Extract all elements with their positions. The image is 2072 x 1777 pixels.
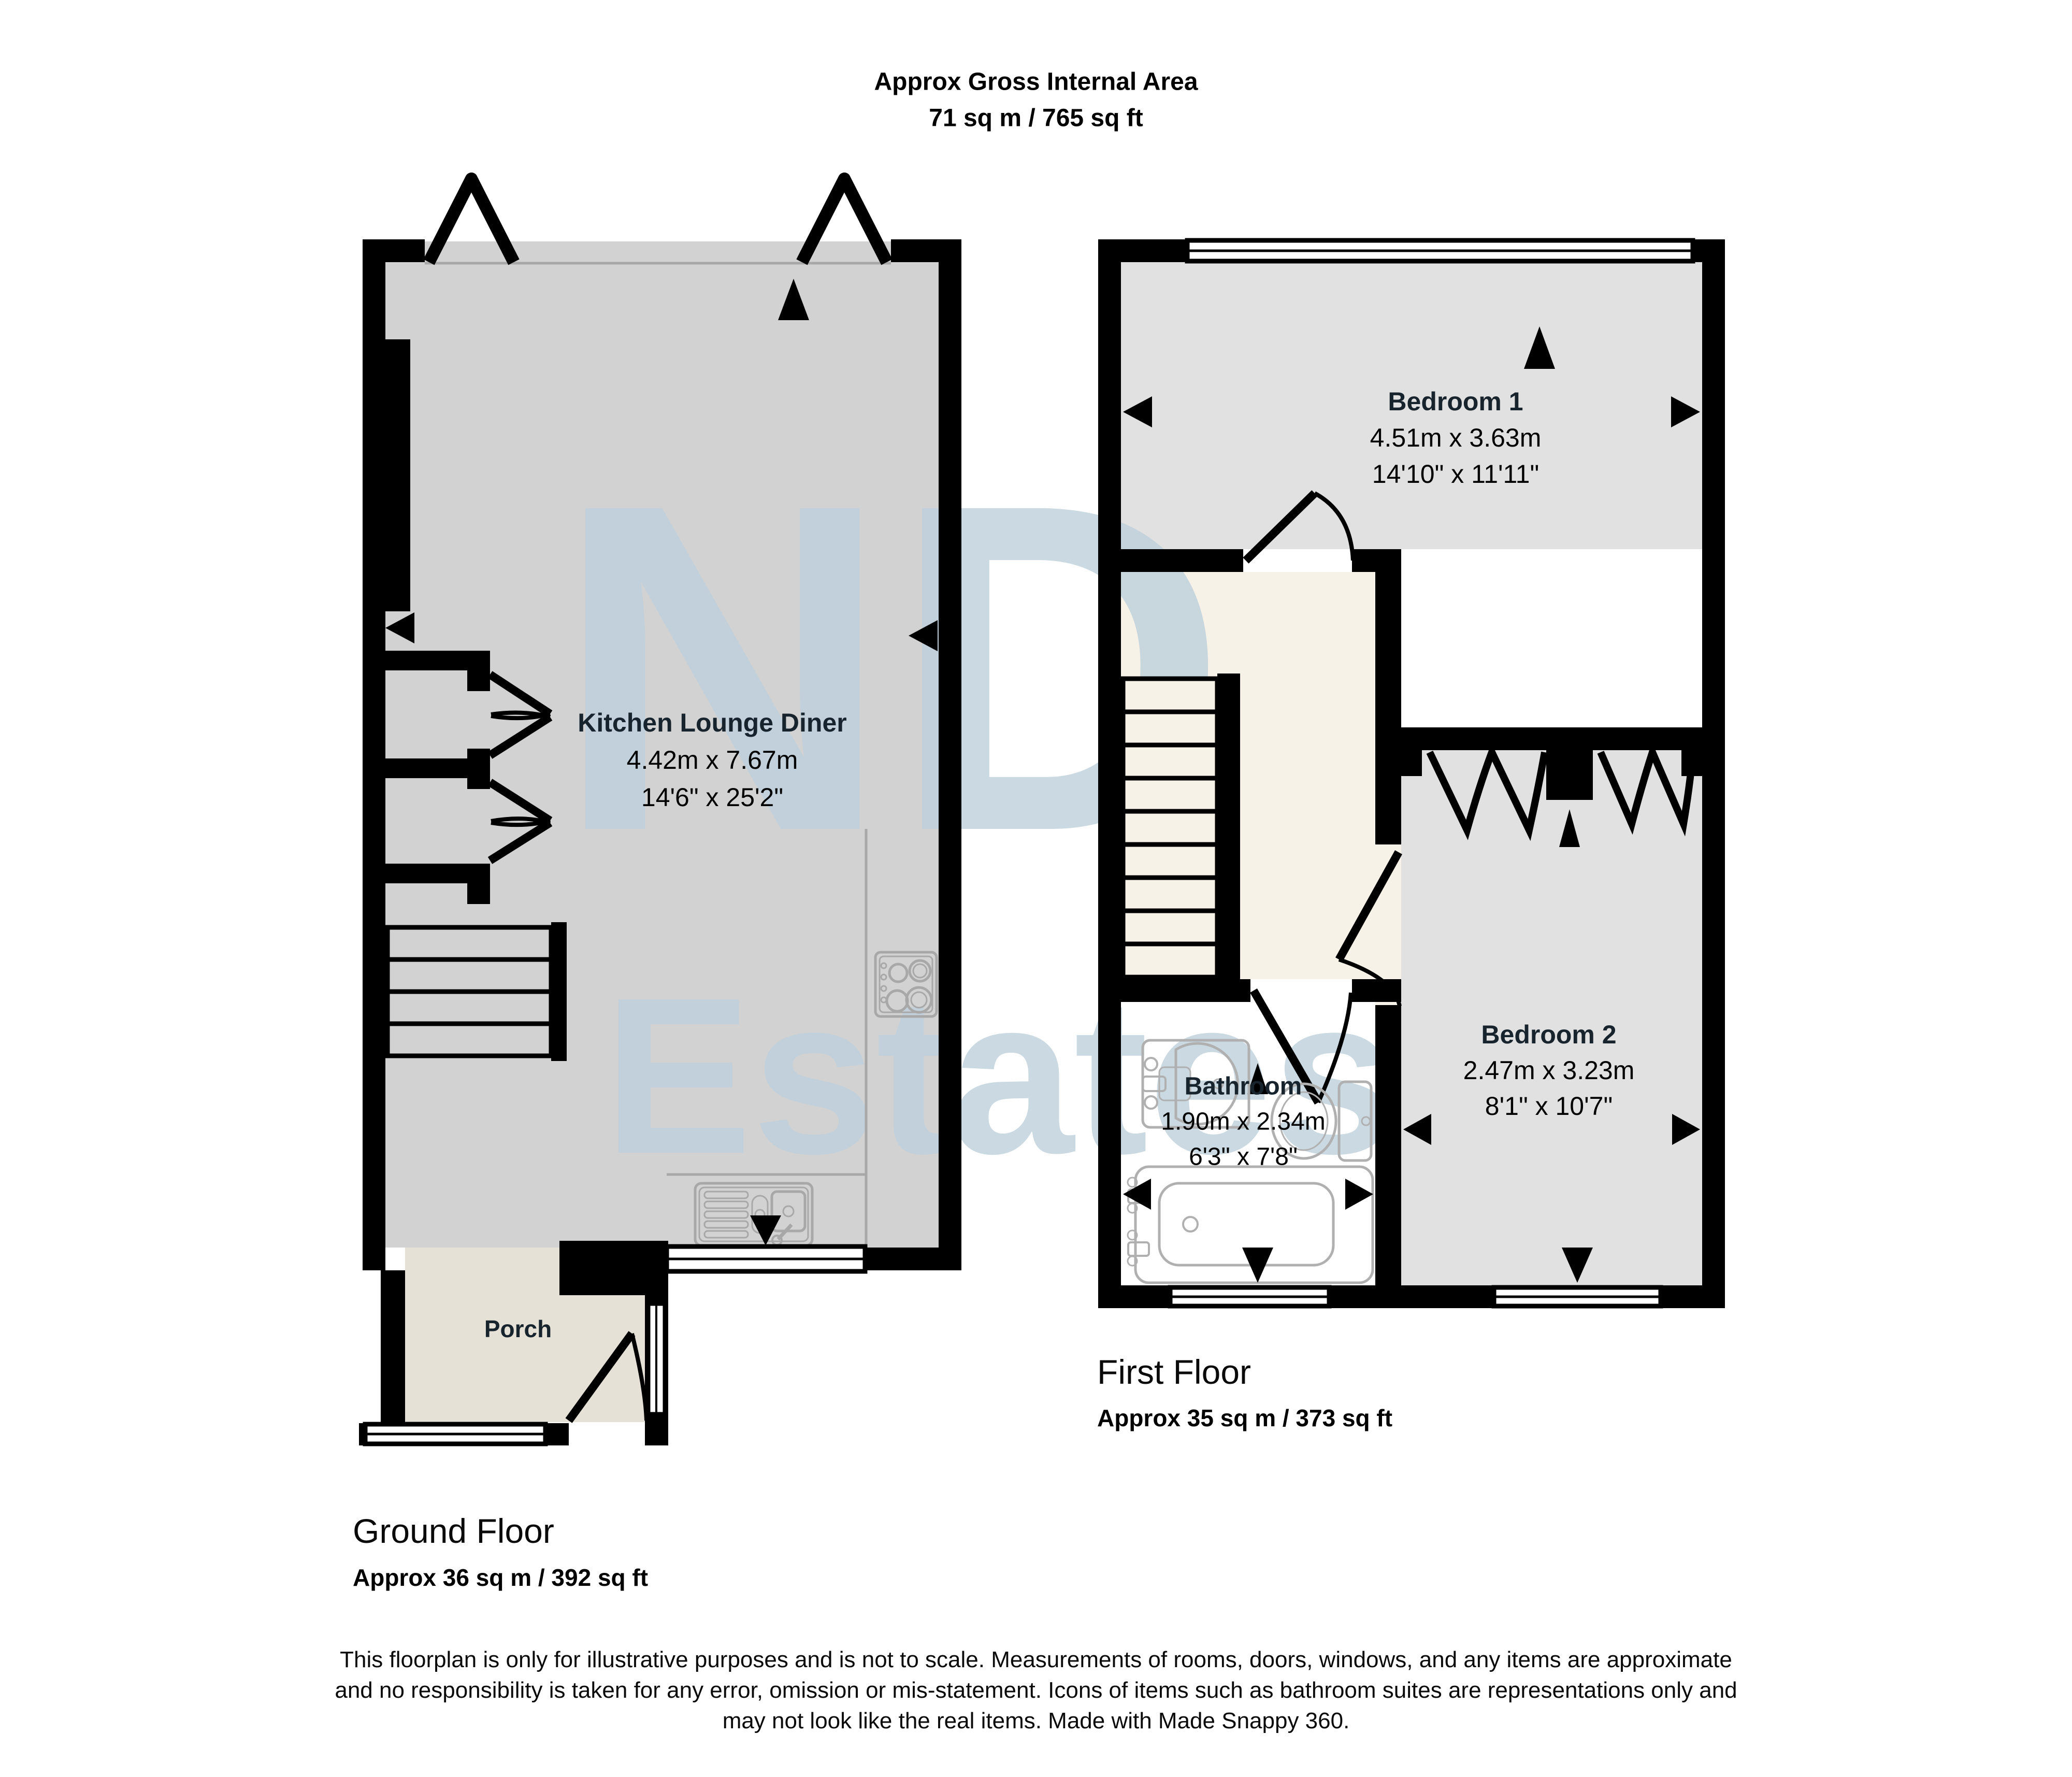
bedroom1-window-icon: [1187, 240, 1693, 261]
disclaimer-line2: and no responsibility is taken for any e…: [335, 1678, 1737, 1703]
bedroom2-label: Bedroom 2: [1481, 1020, 1616, 1050]
kitchen-bottom-window-icon: [667, 1246, 865, 1271]
page-title-line1: Approx Gross Internal Area: [874, 68, 1198, 96]
bedroom2-dim-metric: 2.47m x 3.23m: [1463, 1055, 1635, 1085]
floorplan-drawing: ND Estates: [0, 0, 2072, 1777]
kitchen-label: Kitchen Lounge Diner: [578, 708, 846, 738]
disclaimer-line3: may not look like the real items. Made w…: [723, 1708, 1350, 1734]
porch-bottom-window-icon: [365, 1424, 545, 1444]
kitchen-dim-imperial: 14'6" x 25'2": [641, 782, 783, 812]
porch-label: Porch: [484, 1315, 552, 1343]
bedroom2-floor: [1401, 750, 1702, 1285]
stairs-ground-floor: [387, 927, 551, 1056]
bedroom1-label: Bedroom 1: [1388, 386, 1523, 417]
bathroom-label: Bathroom: [1185, 1072, 1302, 1101]
ground-floor-area: Approx 36 sq m / 392 sq ft: [353, 1564, 648, 1592]
first-floor-area: Approx 35 sq m / 373 sq ft: [1097, 1404, 1392, 1432]
kitchen-dim-metric: 4.42m x 7.67m: [627, 745, 798, 775]
bathroom-window-icon: [1170, 1287, 1329, 1306]
bathroom-dim-metric: 1.90m x 2.34m: [1161, 1108, 1325, 1136]
disclaimer-line1: This floorplan is only for illustrative …: [340, 1647, 1732, 1673]
stairs-stringer: [1217, 673, 1240, 979]
bedroom1-dim-imperial: 14'10" x 11'11": [1372, 459, 1539, 489]
page-title-line2: 71 sq m / 765 sq ft: [929, 104, 1143, 133]
stairs-first-floor: [1123, 679, 1217, 977]
bedroom2-window-icon: [1494, 1287, 1661, 1306]
bedroom2-dim-imperial: 8'1" x 10'7": [1485, 1091, 1613, 1121]
floorplan-page: ND Estates: [0, 0, 2072, 1777]
bedroom1-dim-metric: 4.51m x 3.63m: [1370, 423, 1542, 453]
ground-floor-title: Ground Floor: [353, 1511, 554, 1551]
chimney-breast: [385, 339, 410, 611]
bathroom-dim-imperial: 6'3" x 7'8": [1189, 1143, 1298, 1171]
porch-side-window-icon: [649, 1304, 665, 1414]
first-floor-title: First Floor: [1097, 1352, 1251, 1392]
